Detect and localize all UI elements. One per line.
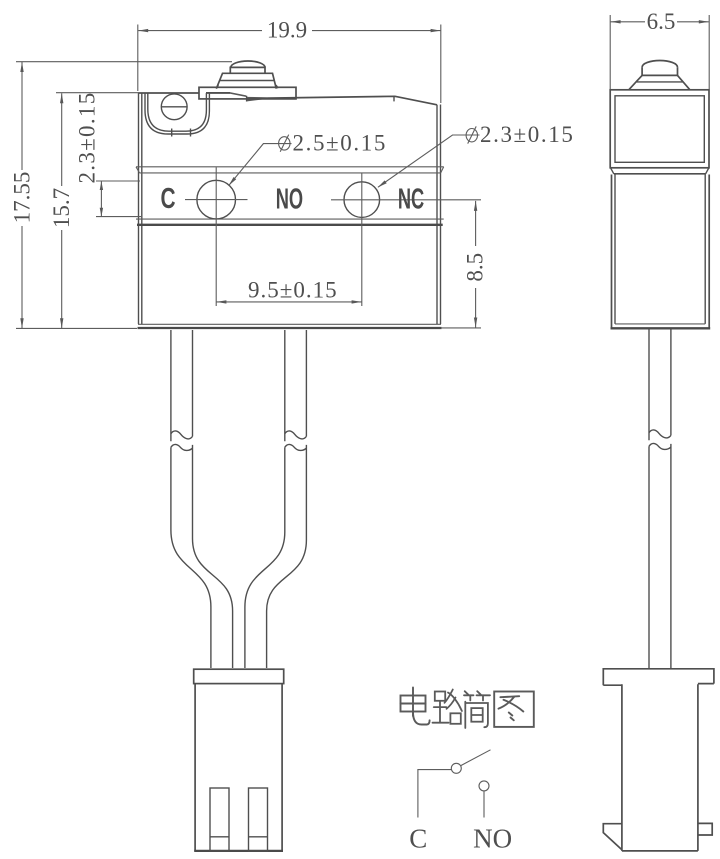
svg-text:8.5: 8.5	[463, 253, 488, 282]
svg-text:C: C	[409, 824, 427, 854]
svg-text:NC: NC	[398, 183, 424, 215]
svg-text:19.9: 19.9	[267, 18, 307, 43]
svg-text:2.3±0.15: 2.3±0.15	[480, 122, 574, 147]
svg-text:15.7: 15.7	[49, 188, 74, 228]
svg-text:2.5±0.15: 2.5±0.15	[293, 130, 387, 155]
svg-text:NO: NO	[276, 183, 303, 215]
svg-text:NO: NO	[473, 824, 512, 854]
svg-text:C: C	[160, 183, 175, 215]
svg-text:9.5±0.15: 9.5±0.15	[248, 277, 338, 302]
svg-text:17.55: 17.55	[10, 172, 35, 224]
svg-text:2.3±0.15: 2.3±0.15	[75, 91, 100, 183]
svg-text:6.5: 6.5	[647, 9, 676, 34]
